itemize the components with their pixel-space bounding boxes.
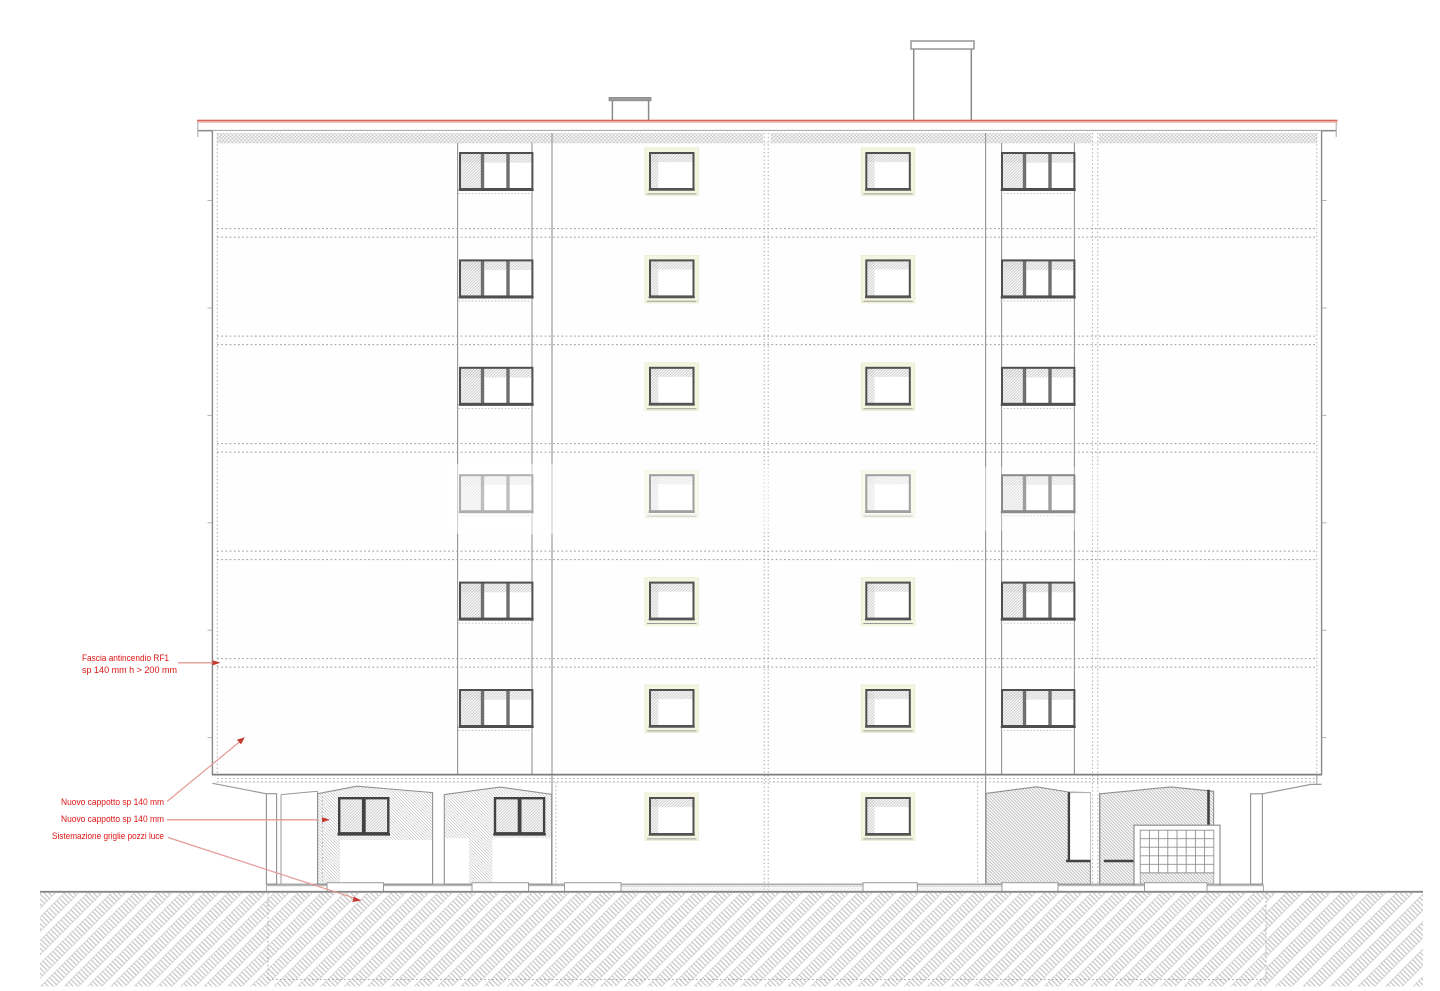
svg-text:sp 140 mm h > 200 mm: sp 140 mm h > 200 mm	[82, 665, 177, 675]
svg-text:Nuovo cappotto sp 140 mm: Nuovo cappotto sp 140 mm	[61, 797, 164, 807]
svg-text:Sistemazione griglie pozzi luc: Sistemazione griglie pozzi luce	[52, 831, 164, 841]
svg-text:Nuovo cappotto sp 140 mm: Nuovo cappotto sp 140 mm	[61, 814, 164, 824]
svg-text:Fascia antincendio RF1: Fascia antincendio RF1	[82, 653, 169, 663]
